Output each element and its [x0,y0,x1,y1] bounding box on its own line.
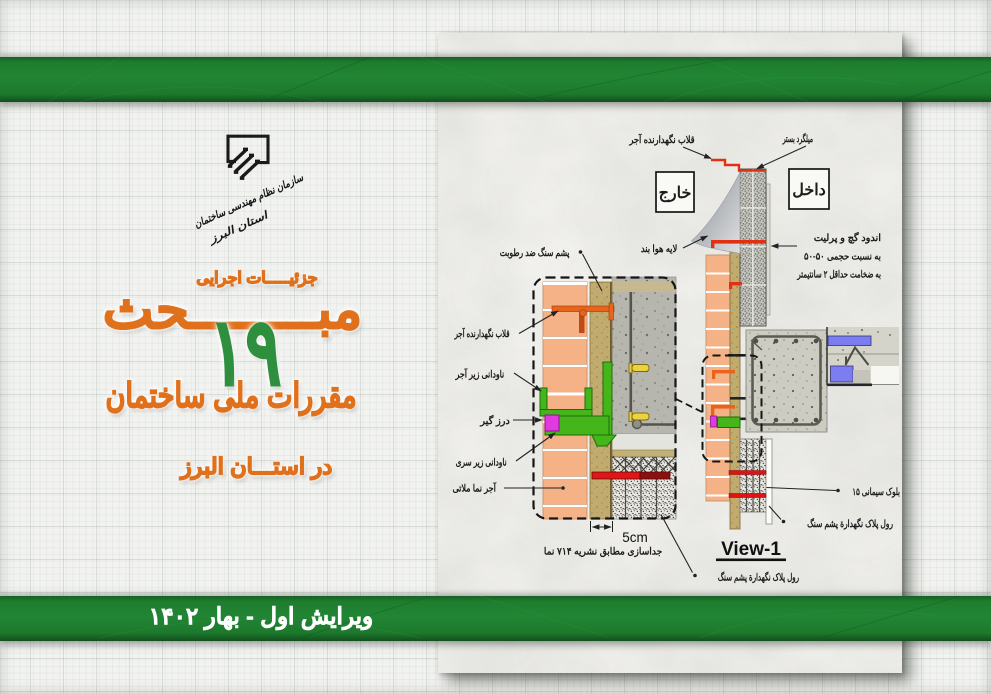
svg-text:ناودانی زیر سری: ناودانی زیر سری [456,456,507,468]
svg-text:داخل: داخل [792,182,826,199]
svg-text:به ضخامت حداقل ۲ سانتیمتر: به ضخامت حداقل ۲ سانتیمتر [796,268,881,281]
svg-text:پشم سنگ ضد رطوبت: پشم سنگ ضد رطوبت [500,246,570,259]
svg-text:5cm: 5cm [622,530,648,545]
svg-text:رول پلاک نگهدارة پشم سنگ: رول پلاک نگهدارة پشم سنگ [807,517,893,531]
svg-text:درز گیر: درز گیر [479,414,510,427]
svg-text:بلوک سیمانی ۱۵: بلوک سیمانی ۱۵ [852,486,900,499]
svg-text:به نسبت حجمی ۵۰-۵۰: به نسبت حجمی ۵۰-۵۰ [804,251,881,262]
svg-text:لایه هوا بند: لایه هوا بند [641,243,677,255]
svg-text:آجر نما ملاتی: آجر نما ملاتی [452,482,497,495]
svg-text:قلاب نگهدارنده آجر: قلاب نگهدارنده آجر [454,327,510,341]
svg-text:جداسازی مطابق نشریه ۷۱۴ نما: جداسازی مطابق نشریه ۷۱۴ نما [544,546,662,558]
svg-text:ناودانی زیر آجر: ناودانی زیر آجر [455,368,505,381]
svg-text:میلگرد بستر: میلگرد بستر [782,132,813,145]
svg-text:قلاب نگهدارنده آجر: قلاب نگهدارنده آجر [628,133,694,146]
svg-text:رول پلاک نگهدارة پشم سنگ: رول پلاک نگهدارة پشم سنگ [718,570,799,584]
svg-text:اندود گچ و پرلیت: اندود گچ و پرلیت [814,231,882,244]
svg-text:خارج: خارج [659,185,692,203]
svg-text:View-1: View-1 [721,539,781,560]
